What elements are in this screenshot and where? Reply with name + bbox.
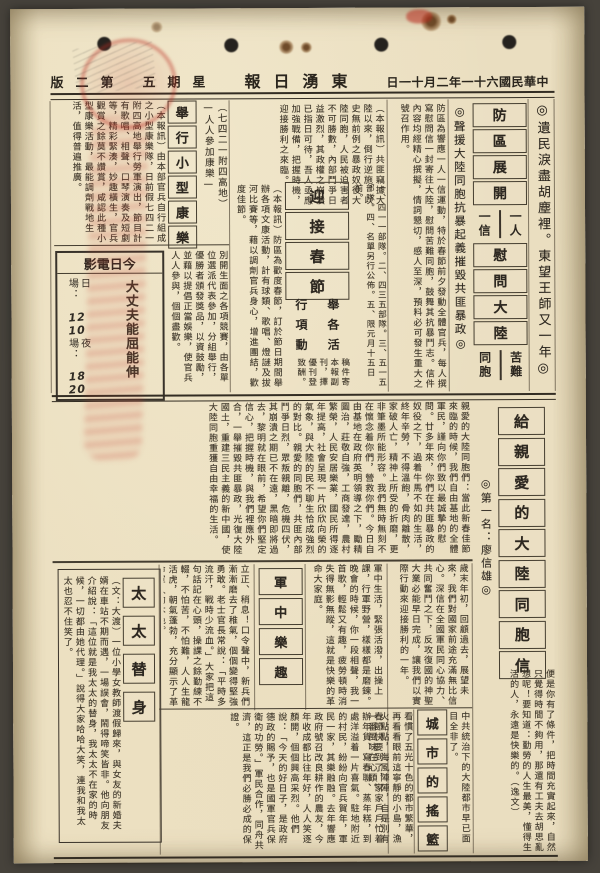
- headline-campaign-stack: 防 區 展 開 一人 一信 慰 問 大 陸 苦難 同胞: [473, 103, 528, 383]
- headline-box-char: 趣: [259, 658, 303, 685]
- headline-box-char: 城: [417, 709, 447, 735]
- pencil-scribble: [72, 41, 157, 95]
- headline-pair-right: 苦難: [508, 351, 525, 379]
- wife-story-frame: 太 太 替 身 （文：大渡）一位小學女教師渡假歸來，與女友的新婚夫婿在車站不期而…: [58, 569, 162, 843]
- headline-box-char: 春: [285, 242, 349, 270]
- headline-box-char: 胞: [499, 620, 546, 648]
- headline-slogan: ◎遺民淚盡胡塵裡。東望王師又一年◎: [530, 103, 555, 391]
- subtitle-row: 動 活: [286, 336, 350, 353]
- stain: [278, 40, 294, 54]
- headline-pair-left: 一信: [476, 210, 493, 238]
- headline-recreation-stack: 舉 行 小 型 康 樂: [168, 100, 198, 248]
- stain: [420, 11, 442, 31]
- column-rule: [50, 101, 52, 393]
- headline-box-char: 問: [473, 269, 527, 293]
- column-rule: [254, 564, 256, 710]
- headline-box-char: 愛: [498, 468, 545, 496]
- headline-box-char: 替: [123, 654, 155, 684]
- subtitle-char: 各: [327, 316, 339, 333]
- bottom-rule: [54, 855, 558, 864]
- newspaper-scan: 日一十月二年一十六國民華中 報日湧東 五期星 版二第 ◎遺民淚盡胡塵裡。東望王師…: [0, 0, 600, 873]
- headline-box-char: 展: [473, 155, 527, 179]
- headline-letter-byline: ◎第一名：廖信雄◎: [473, 477, 496, 643]
- subtitle-char: 舉: [327, 296, 339, 313]
- divider: [500, 350, 502, 380]
- headline-pair-left: 同胞: [477, 351, 494, 379]
- section-rule: [52, 393, 556, 402]
- headline-box-char: 的: [417, 767, 447, 793]
- section-rule: [53, 559, 473, 563]
- article-left-top: （本報訊）由本部官兵自行組成之小型康樂隊，日前假七四二一附四高地舉行勞軍演出，節…: [54, 101, 167, 249]
- article-drill: 立正、稍息！口令聲中，新兵們漸漸磨去了稚氣，個個變得堅強勇敢。老士官長常說：「平…: [164, 564, 251, 708]
- headline-pair-right: 一人: [507, 210, 524, 238]
- subtitle-char: 行: [295, 296, 307, 313]
- cinema-showtimes: 日場： 12 10 夜場： 18 20: [57, 274, 98, 396]
- cinema-box: 影電日今 日場： 12 10 夜場： 18 20 大丈夫能屈能伸: [55, 251, 165, 401]
- article-top-right: 防區為響應一人一信運動，特於春節前夕發動全體官兵，每人撰寫慰問信一封寄往大陸，慰…: [389, 103, 447, 391]
- masthead-date: 日一十月二年一十六國民華中: [386, 73, 549, 91]
- article-letter-body: 親愛的大陸同胞們：當此新春佳節來臨的時候，我們自由基地的全體軍民，謹向你們致以最…: [56, 401, 471, 559]
- subtitle-char: 動: [296, 336, 308, 353]
- headline-box-char: 同: [499, 590, 546, 618]
- headline-box-char: 型: [168, 175, 197, 198]
- headline-box-char: 大: [473, 295, 527, 319]
- headline-box-char: 接: [285, 212, 349, 240]
- masthead-rule: [51, 91, 555, 100]
- cinema-title-wrap: 大丈夫能屈能伸: [97, 274, 163, 396]
- column-rule: [229, 100, 231, 392]
- column-rule: [305, 564, 307, 710]
- article-mid-note: 稿件寄本報副刊，擇優刊登致酬。: [288, 358, 350, 392]
- cinema-body: 日場： 12 10 夜場： 18 20 大丈夫能屈能伸: [57, 274, 163, 396]
- cinema-day-label: 日場：: [65, 278, 89, 311]
- headline-box-char: 慰: [473, 243, 527, 267]
- headline-box-char: 康: [168, 200, 197, 223]
- cinema-header: 影電日今: [57, 253, 162, 274]
- stain: [446, 14, 457, 24]
- punch-dot: [502, 35, 516, 49]
- headline-support: ◎聲援大陸同胞抗暴起義摧毀共匪暴政◎: [450, 104, 471, 390]
- punch-dot: [224, 38, 238, 52]
- headline-box-char: 樂: [259, 628, 303, 655]
- article-bottom-mid: 春節快要到了，家家戶戶忙着辦年貨、寫春聯、蒸年糕，到處洋溢着一片喜氣。駐地附近的…: [163, 712, 384, 853]
- subtitle-row: 行 舉: [285, 296, 349, 313]
- article-letter-cont: 便是你有了條件，把時間充實起來，自然只覺得時間不夠用，那還有工夫去胡思亂想呢！要…: [475, 669, 556, 853]
- headline-box-char: 籃: [418, 825, 448, 851]
- article-army-story: 軍中生活，緊張活潑，出操上課，行軍野營，樣樣都是磨鍊。晚會的時候，你一段相聲，我…: [309, 564, 384, 710]
- article-left-mid: 別開生面之各項競賽，由各單位選派代表參加，分組舉行，優勝者頒發獎品，以資鼓勵，並…: [166, 250, 229, 392]
- headline-box-char: 陸: [474, 321, 528, 345]
- headline-box-char: 防: [473, 103, 527, 127]
- article-mid-list: 一、四一一部隊。二、四三五部隊。三、五一五部隊。四、名單另行公佈。五、限元月十五…: [352, 184, 387, 390]
- cinema-day-hour: 12: [68, 311, 86, 324]
- headline-box-char: 大: [498, 529, 545, 557]
- subtitle-char: 項: [295, 316, 307, 333]
- divider: [499, 210, 501, 238]
- headline-box-char: 身: [123, 692, 155, 722]
- subtitle-row: 項 各: [285, 316, 349, 333]
- masthead-title: 報日湧東: [244, 68, 360, 93]
- stain: [150, 22, 163, 33]
- headline-box-char: 陸: [499, 559, 546, 587]
- headline-wife-stack: 太 太 替 身: [123, 578, 156, 722]
- headline-box-char: 的: [498, 498, 545, 526]
- headline-city-stack: 城 市 的 搖 籃: [417, 709, 448, 851]
- article-city-left: 看慣了五光十色的都市繁華，再看看眼前這寧靜的小島，漁火點點，海風陣陣，自是別有一…: [357, 712, 414, 852]
- headline-box-char: 迎: [285, 182, 349, 210]
- cinema-day-minute: 10: [68, 324, 86, 337]
- headline-box-char: 市: [417, 738, 447, 764]
- headline-pair: 苦難 同胞: [474, 347, 528, 383]
- headline-box-char: 區: [473, 129, 527, 153]
- paper: 日一十月二年一十六國民華中 報日湧東 五期星 版二第 ◎遺民淚盡胡塵裡。東望王師…: [10, 7, 588, 863]
- headline-box-char: 軍: [259, 568, 303, 595]
- headline-pair: 一人 一信: [473, 207, 527, 241]
- headline-box-char: 太: [123, 616, 155, 646]
- headline-army-stack: 軍 中 樂 趣: [259, 568, 304, 685]
- punch-dot: [374, 38, 388, 52]
- cinema-film-title: 大丈夫能屈能伸: [122, 280, 138, 392]
- headline-box-char: 搖: [418, 796, 448, 822]
- article-city-right: 中共統治下的大陸都市早已面目全非了。: [450, 711, 471, 851]
- headline-spring-stack: 迎 接 春 節: [285, 182, 350, 300]
- headline-box-char: 舉: [168, 100, 197, 123]
- stain: [300, 42, 312, 53]
- headline-spring-subtitle: 行 舉 項 各 動 活: [285, 296, 349, 353]
- headline-box-char: 小: [168, 150, 197, 173]
- headline-box-char: 親: [498, 437, 545, 465]
- headline-box-char: 太: [123, 578, 155, 608]
- headline-box-char: 中: [259, 598, 303, 625]
- article-mid-left: （本報訊）防區為歡度春節，訂於節日期間舉辦各項文康活動，計有球類、歌唱、燈謎及拔…: [232, 184, 283, 390]
- subtitle-char: 活: [328, 336, 340, 353]
- headline-box-char: 行: [168, 125, 197, 148]
- headline-box-char: 給: [498, 407, 545, 435]
- article-right-mid: 歲末年初，回顧過去，展望未來，我們對國家前途充滿無比信心。深信在全國軍民同心協力…: [391, 563, 470, 709]
- article-wife-story: （文：大渡）一位小學女教師渡假歸來，與女友的新婚夫婿在車站不期而遇，一場誤會，鬧…: [63, 576, 122, 834]
- cinema-night-label: 夜場：: [66, 337, 90, 370]
- headline-box-char: 開: [473, 181, 527, 205]
- headline-letter-stack: 給 親 愛 的 大 陸 同 胞 信: [498, 407, 546, 679]
